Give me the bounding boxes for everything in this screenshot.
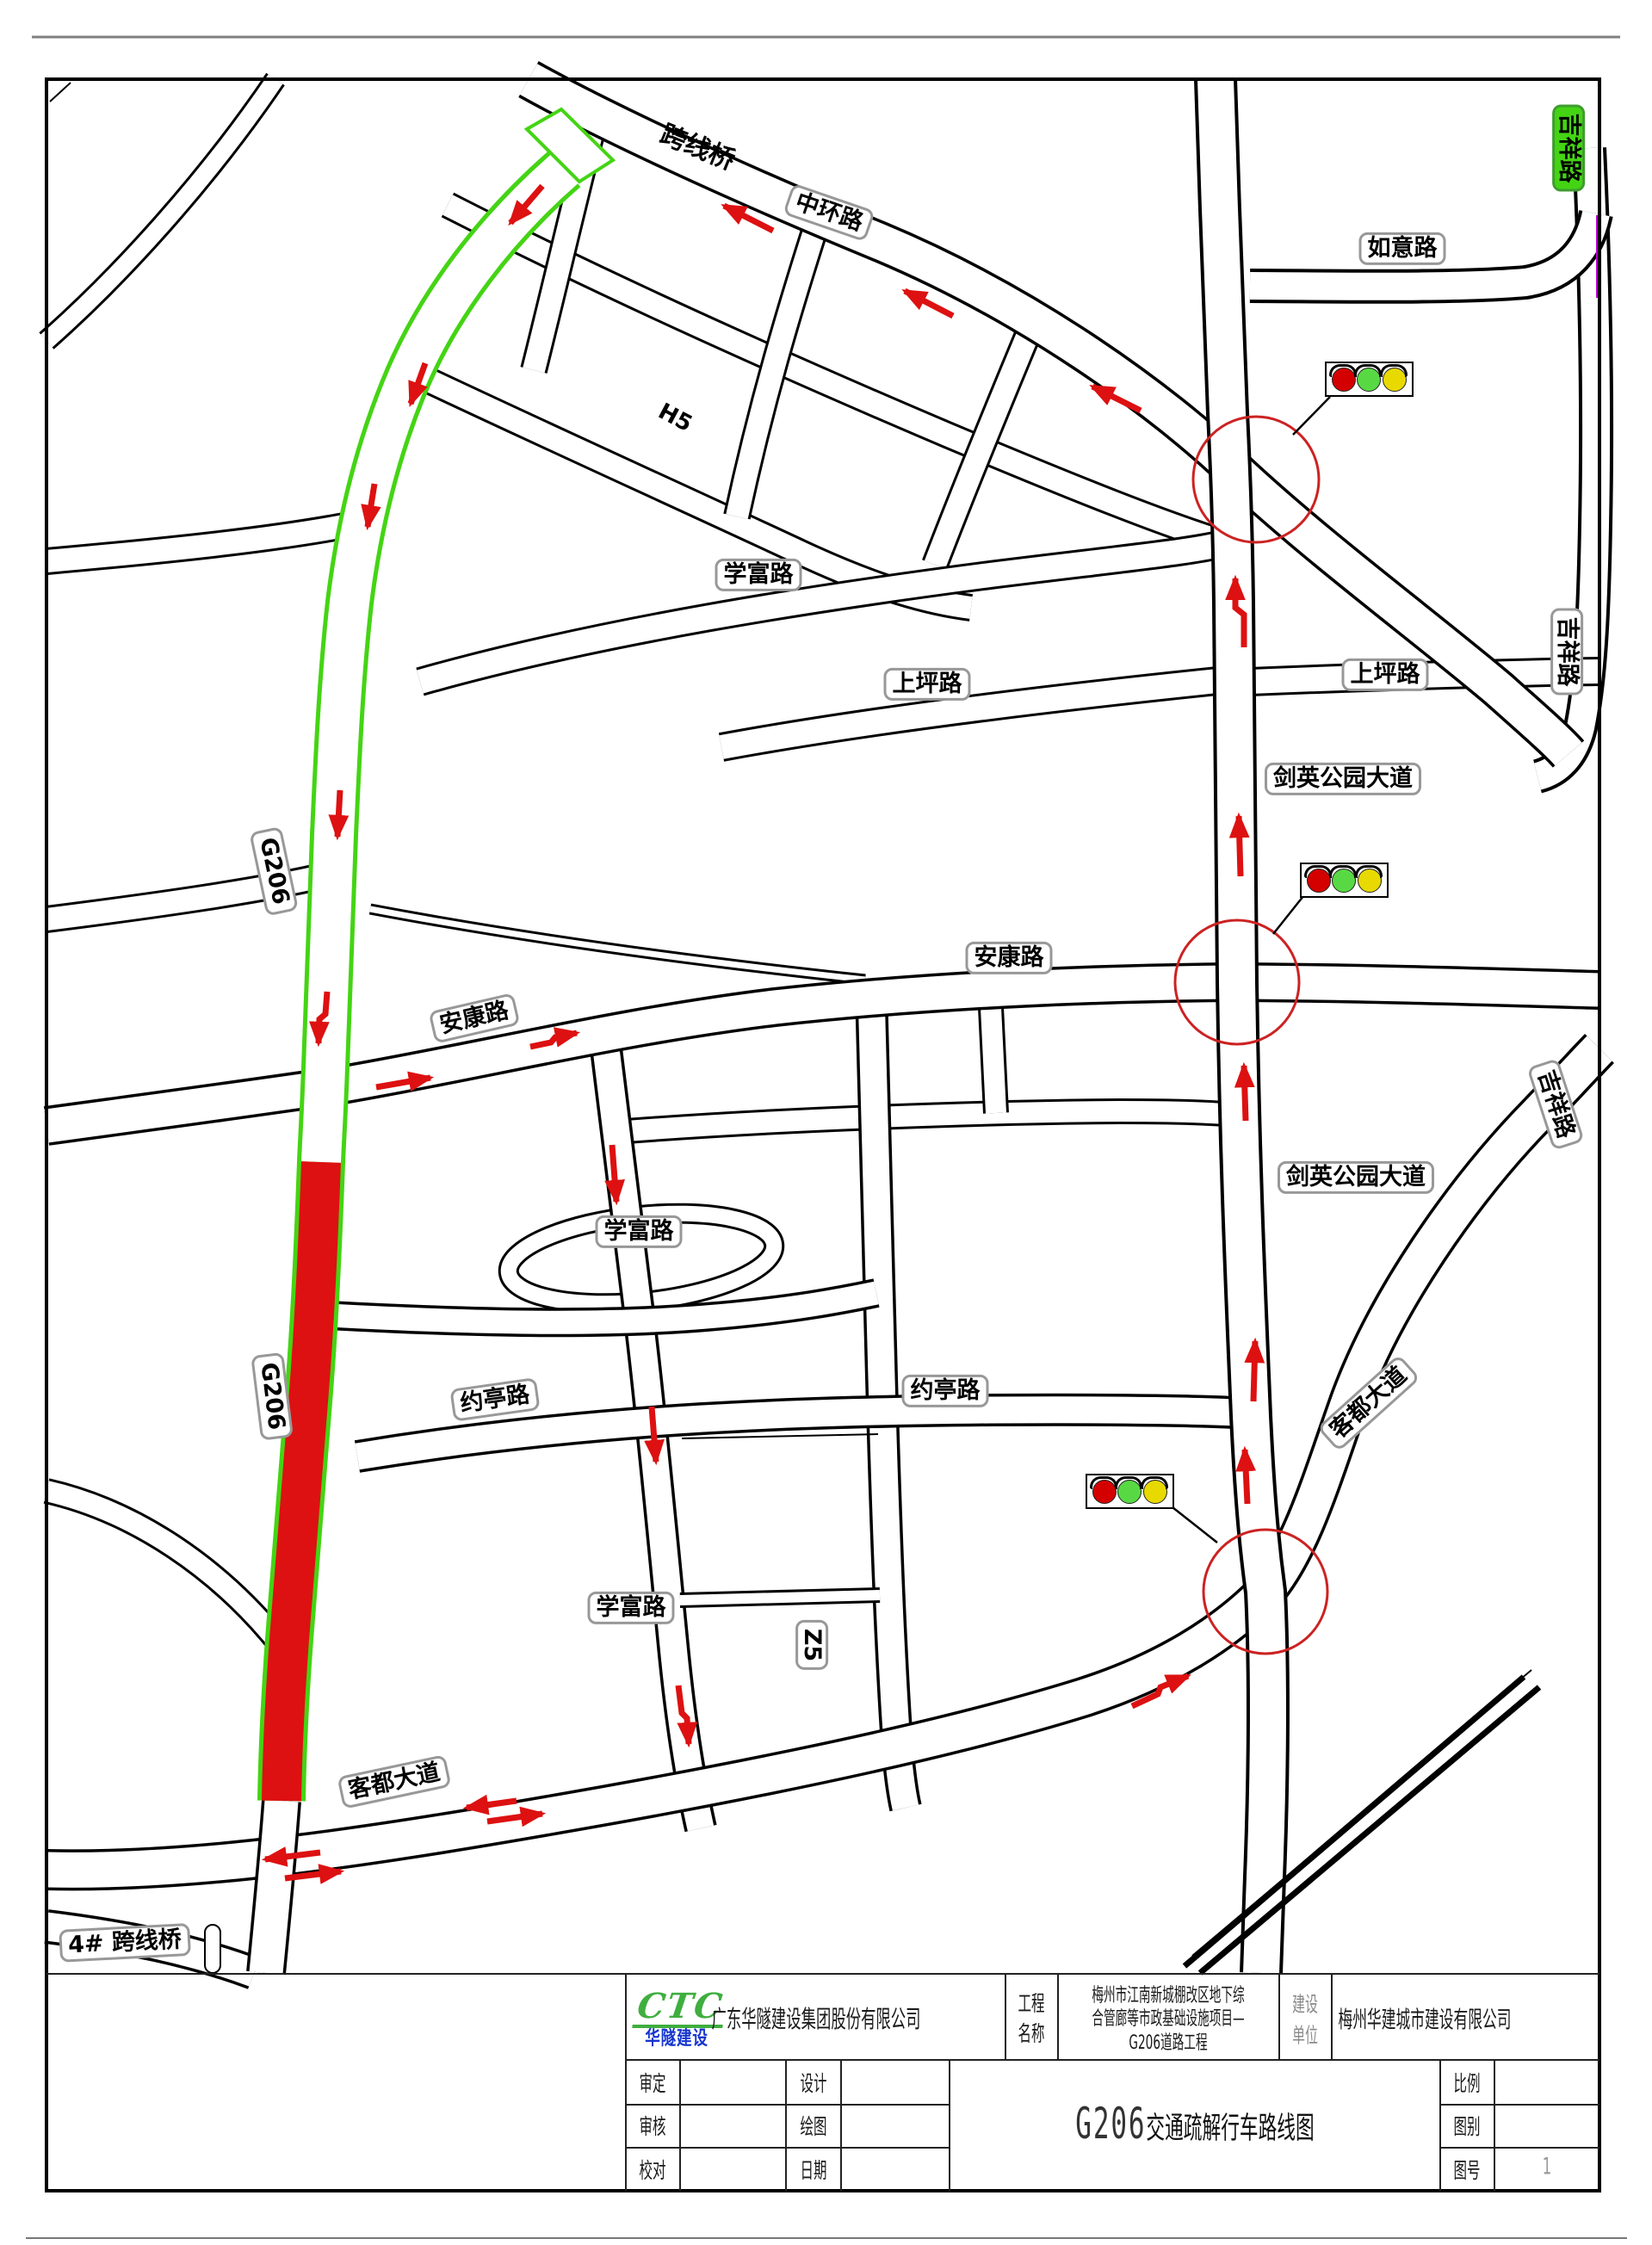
road-label-shangpinglu-left: 上坪路	[884, 668, 971, 701]
green-lamp-icon	[1357, 368, 1381, 392]
drawing-title: G206交通疏解行车路线图	[1075, 2099, 1314, 2149]
green-lamp-icon	[1117, 1480, 1142, 1504]
field-huitu: 绘图	[800, 2110, 826, 2141]
road-label-shangpinglu-right: 上坪路	[1342, 659, 1429, 691]
red-lamp-icon	[1332, 368, 1356, 392]
road-network-canvas	[0, 0, 1652, 2245]
road-label-xuefulu-south: 学富路	[588, 1592, 675, 1624]
red-lamp-icon	[1307, 869, 1331, 893]
traffic-signal-icon-north	[1325, 362, 1414, 397]
road-label-yuetinglu-east: 约亭路	[902, 1375, 989, 1407]
traffic-signal-icon-south	[1086, 1474, 1174, 1509]
field-shenhe: 审核	[639, 2110, 665, 2141]
g206-route	[282, 109, 613, 1801]
road-label-jixianglu-mid: 吉祥路	[1550, 609, 1583, 696]
road-label-ruyilu: 如意路	[1359, 232, 1446, 265]
drawing-title-g206: G206	[1075, 2099, 1146, 2149]
road-label-xuefulu-upper: 学富路	[715, 559, 802, 591]
drawing-title-text: 交通疏解行车路线图	[1146, 2112, 1314, 2146]
drawing-sheet: 跨线桥 中环路 如意路 吉祥路 H5 学富路 上坪路 上坪路 吉祥路 剑英公园大…	[0, 0, 1652, 2245]
yellow-lamp-icon	[1143, 1480, 1167, 1504]
field-shending: 审定	[639, 2067, 665, 2098]
builder-company-name: 梅州华建城市建设有限公司	[1339, 2001, 1512, 2035]
road-label-jianying-1: 剑英公园大道	[1265, 763, 1421, 795]
yellow-lamp-icon	[1358, 869, 1382, 893]
road-label-jianying-2: 剑英公园大道	[1278, 1161, 1434, 1194]
road-label-z5: Z5	[795, 1620, 828, 1670]
ctc-logo-subtext: 华隧建设	[645, 2023, 708, 2050]
g206-closed-section	[282, 1162, 321, 1801]
road-label-xuefulu-mid: 学富路	[596, 1215, 683, 1248]
field-bili: 比例	[1453, 2067, 1480, 2098]
yellow-lamp-icon	[1383, 368, 1407, 392]
builder-label-1: 建设	[1292, 1988, 1318, 2018]
traffic-signal-icon-middle	[1300, 863, 1389, 898]
builder-label-2: 单位	[1292, 2019, 1318, 2049]
bridge-pier	[205, 1925, 220, 1973]
project-name-label-2: 名称	[1018, 2017, 1044, 2048]
railway	[1185, 1670, 1539, 1973]
red-lamp-icon	[1092, 1480, 1117, 1504]
sheet-number: 1	[1543, 2154, 1552, 2180]
field-riqi: 日期	[800, 2154, 826, 2185]
field-sheji: 设计	[800, 2067, 826, 2098]
road-label-jixianglu-top: 吉祥路	[1552, 105, 1585, 192]
road-label-ankanglu-east: 安康路	[966, 942, 1053, 974]
project-name-label-1: 工程	[1018, 1987, 1044, 2018]
project-name-line3: G206道路工程	[1129, 2027, 1207, 2055]
design-company-name: 广东华隧建设集团股份有限公司	[711, 2001, 920, 2035]
field-jiaodui: 校对	[639, 2154, 665, 2185]
field-tuhao: 图号	[1453, 2154, 1480, 2185]
green-lamp-icon	[1332, 869, 1356, 893]
field-tubie: 图别	[1453, 2110, 1480, 2141]
